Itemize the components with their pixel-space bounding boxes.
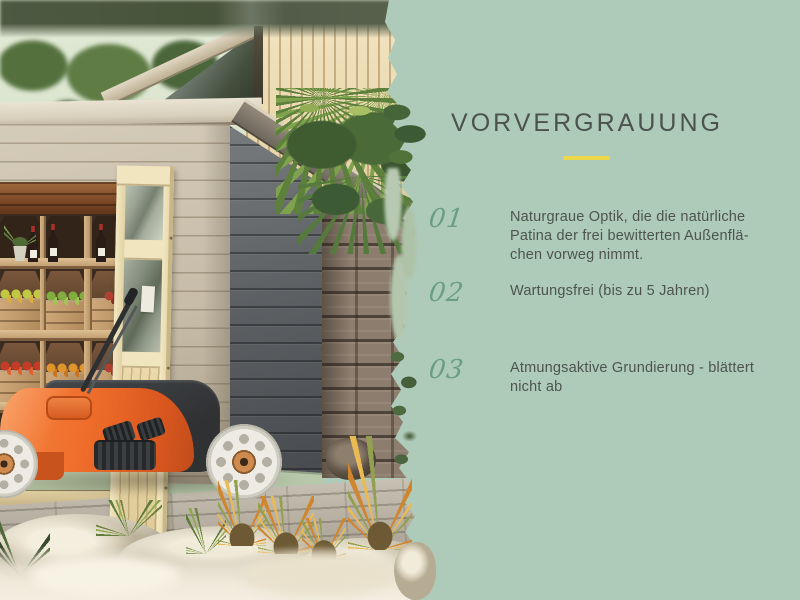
feature-item-1: 01 Naturgraue Optik, die die natürliche …: [429, 204, 789, 284]
oranges: [46, 362, 84, 378]
green-apples: [0, 288, 40, 304]
blur-blob: [30, 556, 180, 596]
feature-item-2: 02 Wartungsfrei (bis zu 5 Jahren): [429, 278, 789, 358]
feature-text-line: Patina der frei bewitterten Außenflä-: [510, 227, 749, 246]
feature-number: 01: [427, 204, 466, 234]
door-glass-upper: [125, 186, 164, 241]
lawnmower-wheel: [0, 428, 40, 500]
top-foliage-blur: [0, 0, 432, 38]
feature-text-line: chen vorweg nimmt.: [510, 246, 749, 265]
ornamental-plant-edge: [348, 436, 412, 550]
feature-text-line: Atmungsaktive Grundierung - blättert: [510, 359, 754, 378]
feature-text: Wartungsfrei (bis zu 5 Jahren): [510, 282, 710, 301]
lawnmower-grille: [94, 440, 156, 470]
feature-text: Atmungsaktive Grundierung - blättert nic…: [510, 359, 754, 397]
feature-item-3: 03 Atmungsaktive Grundierung - blättert …: [429, 355, 789, 435]
lawnmower-handle-mount: [46, 396, 92, 420]
pale-leaf-overlay: [378, 168, 428, 348]
slide: VORVERGRAUUNG 01 Naturgraue Optik, die d…: [0, 0, 800, 600]
feature-text-line: Wartungsfrei (bis zu 5 Jahren): [510, 282, 710, 301]
feature-text-line: nicht ab: [510, 378, 754, 397]
door-screw: [167, 367, 170, 370]
fern-overlay: [384, 98, 426, 170]
door-screw: [170, 237, 173, 240]
grass-tuft: [96, 500, 162, 536]
page-title: VORVERGRAUUNG: [420, 109, 754, 138]
feature-number: 03: [427, 355, 466, 385]
feature-text: Naturgraue Optik, die die natürliche Pat…: [510, 208, 749, 265]
door-rail: [117, 165, 174, 186]
photo-edge-rock: [394, 542, 436, 600]
feature-text-line: Naturgraue Optik, die die natürliche: [510, 208, 749, 227]
lettuce: [46, 290, 84, 306]
tomatoes: [0, 360, 40, 376]
blur-blob: [240, 552, 400, 596]
paper-note: [141, 286, 155, 313]
potted-plant-leaves: [4, 224, 36, 248]
door-rail: [124, 240, 162, 261]
title-divider: [563, 156, 610, 160]
door-rail: [122, 352, 160, 369]
feature-number: 02: [427, 278, 466, 308]
